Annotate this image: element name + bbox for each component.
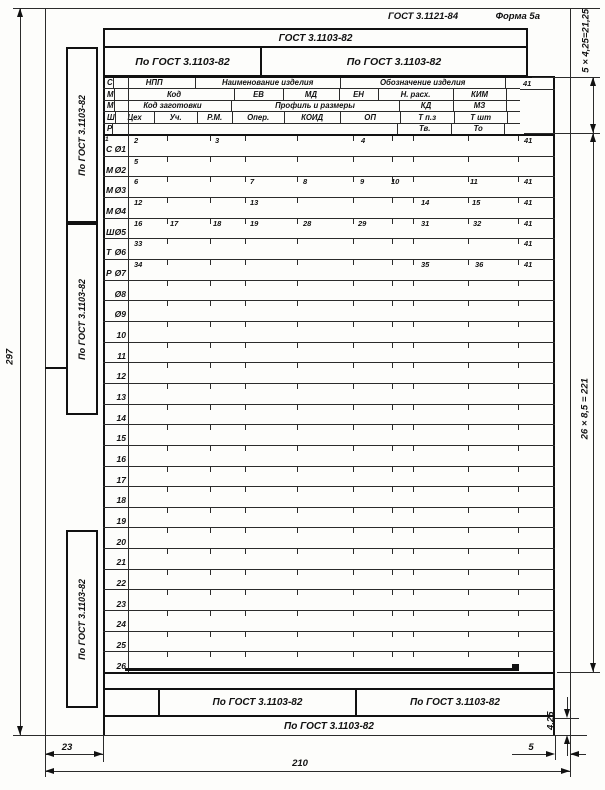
row-label: ТØ6 [103,248,129,257]
column-tick [245,384,246,389]
column-tick [518,322,519,327]
column-tick [392,157,393,162]
column-tick [468,446,469,451]
column-tick [413,363,414,368]
row-label: МØ2 [103,166,129,175]
field-number: 41 [524,240,532,248]
header-corner-41: 41 [520,78,555,90]
ext-line-header-bottom [524,133,600,134]
field-number: 28 [303,220,311,228]
column-tick [468,198,469,203]
sheet-border-right [570,8,571,735]
column-tick [392,260,393,265]
row-label: 14 [103,414,129,423]
side-block-3: По ГОСТ 3.1103-82 [66,530,98,708]
header-letter: Ш [103,112,116,122]
field-number: 12 [134,199,142,207]
table-bottom-line [103,672,555,674]
column-tick [353,363,354,368]
dim-footer-tail-bottom [567,744,568,756]
row-label: МØ4 [103,207,129,216]
table-row: МØ41213141541 [103,197,555,218]
column-tick [413,508,414,513]
column-tick [297,467,298,472]
column-tick [210,405,211,410]
column-tick [392,322,393,327]
column-tick [297,177,298,182]
column-tick [518,301,519,306]
field-number: 36 [475,261,483,269]
table-row: 10 [103,321,555,342]
table-row: 11 [103,342,555,363]
row-label-number: 22 [117,579,126,588]
row-label-prefix: Ш [106,228,114,237]
row-label-number: 24 [117,620,126,629]
column-tick [353,198,354,203]
column-tick [167,260,168,265]
column-tick [468,239,469,244]
row-label: 22 [103,579,129,588]
field-number: 34 [134,261,142,269]
column-tick [297,652,298,657]
column-tick [210,528,211,533]
column-tick [353,260,354,265]
column-tick [353,446,354,451]
header-cell: Обозначение изделия [341,78,506,88]
row-label-prefix: М [106,166,113,175]
row-label-number: 18 [117,496,126,505]
column-tick [468,219,469,224]
header-cell: ЕН [340,89,379,99]
row-label-number: Ø7 [115,269,126,278]
table-row: 16 [103,445,555,466]
column-tick [167,322,168,327]
table-row: 15 [103,424,555,445]
column-tick [518,528,519,533]
ext-line-table-right [555,735,556,760]
header-letter: С [103,78,114,88]
field-number: 29 [358,220,366,228]
row-label: 10 [103,331,129,340]
dim-297-arrow-top [17,8,23,17]
row-label-prefix: Т [106,248,111,257]
field-number: 41 [524,220,532,228]
page-title: ГОСТ 3.1121-84 Форма 5а [388,11,540,22]
table-row: 13 [103,383,555,404]
column-tick [297,301,298,306]
column-tick [518,281,519,286]
column-tick [167,343,168,348]
column-tick [210,260,211,265]
column-tick [210,652,211,657]
row-label-number: 15 [117,434,126,443]
column-tick [245,219,246,224]
header-cell: Р.М. [198,112,233,122]
column-tick [297,632,298,637]
column-tick [518,632,519,637]
side-block-1: По ГОСТ 3.1103-82 [66,47,98,223]
table-row: ШØ5161718192829313241 [103,218,555,239]
row-label-number: Ø4 [115,207,126,216]
column-tick [392,611,393,616]
row-label: 23 [103,600,129,609]
column-tick [518,405,519,410]
column-tick [210,136,211,141]
column-tick [210,198,211,203]
ext-line-footer-top [555,718,579,719]
end-of-table-square [512,664,519,671]
row-label: 11 [103,352,129,361]
table-row: 24 [103,610,555,631]
column-tick [297,405,298,410]
column-tick [392,219,393,224]
column-tick [353,301,354,306]
row-label: СØ1 [103,145,129,154]
field-number: 41 [524,137,532,145]
column-tick [468,467,469,472]
dim-right-line [593,77,594,672]
table-row: 12 [103,362,555,383]
column-tick [413,260,414,265]
column-tick [518,570,519,575]
column-tick [245,343,246,348]
row-label-number: 13 [117,393,126,402]
column-tick [210,467,211,472]
column-tick [297,384,298,389]
column-tick [353,487,354,492]
column-tick [245,239,246,244]
column-tick [245,611,246,616]
top-block: ГОСТ 3.1103-82 По ГОСТ 3.1103-82 По ГОСТ… [103,28,528,77]
header-row-m2: М Код заготовки Профиль и размеры КД МЗ [103,101,520,112]
dim-footer-label: 4,25 [546,705,556,737]
column-tick [413,198,414,203]
dim-5-arrow-left [546,751,555,757]
column-tick [413,549,414,554]
column-tick [392,652,393,657]
column-tick [518,219,519,224]
footer-right-cell: По ГОСТ 3.1103-82 [357,690,553,715]
row-label-number: Ø1 [115,145,126,154]
column-tick [468,549,469,554]
header-letter: Р [103,124,113,134]
dim-210-arrow-left [45,768,54,774]
column-tick [518,508,519,513]
column-tick [392,239,393,244]
column-tick [353,528,354,533]
column-tick [353,652,354,657]
dim-210-arrow-right [561,768,570,774]
column-tick [468,260,469,265]
spec-header: С НПП Наименование изделия Обозначение и… [103,78,520,134]
row-label-number: 17 [117,476,126,485]
column-tick [297,219,298,224]
header-cell: Цех [116,112,155,122]
row-label-number: 10 [117,331,126,340]
column-tick [413,322,414,327]
row-label-number: Ø8 [115,290,126,299]
column-tick [167,219,168,224]
column-tick [518,549,519,554]
column-tick [245,487,246,492]
column-tick [413,425,414,430]
field-number: 33 [134,240,142,248]
column-tick [245,446,246,451]
sheet-border-left [45,8,46,735]
sheet-border-bottom [13,735,587,736]
column-tick [518,239,519,244]
column-tick [392,570,393,575]
field-number: 9 [360,178,364,186]
column-tick [245,177,246,182]
dim-footer-arrow-bottom [564,735,570,744]
dim-210-line [45,771,570,772]
column-tick [468,157,469,162]
column-tick [413,177,414,182]
column-tick [353,590,354,595]
column-tick [468,343,469,348]
column-tick [167,177,168,182]
column-tick [413,405,414,410]
side-block-connector [45,367,66,369]
dim-297-arrow-bottom [17,726,23,735]
label-column-divider [128,77,129,672]
row-label: 18 [103,496,129,505]
table-row: 19 [103,507,555,528]
column-tick [297,508,298,513]
field-number: 4 [361,137,365,145]
column-tick [167,405,168,410]
header-row-sh: Ш Цех Уч. Р.М. Опер. КОИД ОП Т п.з Т шт [103,112,520,123]
column-tick [392,136,393,141]
column-tick [245,281,246,286]
row-label: 15 [103,434,129,443]
column-tick [468,363,469,368]
field-number: 19 [250,220,258,228]
dim-header-arrow-bottom [590,124,596,133]
row-label: Ø9 [103,310,129,319]
row-label-prefix: М [106,207,113,216]
field-number: 2 [134,137,138,145]
column-tick [297,528,298,533]
column-tick [392,528,393,533]
column-tick [210,425,211,430]
column-tick [245,198,246,203]
column-tick [210,219,211,224]
header-cell: Т шт [455,112,508,122]
header-letter: М [103,101,115,111]
column-tick [245,590,246,595]
field-number: 32 [473,220,481,228]
column-tick [413,343,414,348]
column-tick [245,260,246,265]
dim-rows-arrow-top [590,133,596,142]
column-tick [518,467,519,472]
header-cell: МЗ [454,101,507,111]
column-tick [392,343,393,348]
table-row: 25 [103,631,555,652]
header-cell: Код заготовки [115,101,232,111]
column-tick [392,590,393,595]
column-tick [353,405,354,410]
column-tick [297,425,298,430]
column-tick [297,611,298,616]
column-tick [210,446,211,451]
column-tick [468,136,469,141]
dim-297-line [20,8,21,735]
field-number: 16 [134,220,142,228]
column-tick [353,549,354,554]
row-label: 25 [103,641,129,650]
dim-23-label: 23 [52,743,82,753]
column-tick [297,260,298,265]
column-tick [413,446,414,451]
column-tick [392,405,393,410]
header-cell [113,124,398,134]
table-row: 14 [103,404,555,425]
column-tick [245,157,246,162]
column-tick [392,632,393,637]
column-tick [518,590,519,595]
form-number: Форма 5а [496,11,540,22]
table-row: РØ734353641 [103,259,555,280]
row-label-number: 14 [117,414,126,423]
grid-rows: 1СØ123441МØ25МØ36789101141МØ41213141541Ш… [103,136,555,672]
field-number: 41 [524,178,532,186]
column-tick [468,508,469,513]
column-tick [167,528,168,533]
header-cell: Т п.з [401,112,455,122]
header-cell: ОП [341,112,401,122]
column-tick [167,301,168,306]
column-tick [392,467,393,472]
column-tick [353,343,354,348]
side-block-2: По ГОСТ 3.1103-82 [66,223,98,415]
column-tick [518,652,519,657]
row-superscript: 1 [105,137,109,144]
row-label: 16 [103,455,129,464]
column-tick [167,384,168,389]
field-number: 7 [250,178,254,186]
row-label-number: 25 [117,641,126,650]
column-tick [468,177,469,182]
row-label: 20 [103,538,129,547]
row-label: 17 [103,476,129,485]
row-label-number: Ø6 [115,248,126,257]
dim-5-line-left [512,754,546,755]
header-cell: Тв. [398,124,452,134]
column-tick [518,177,519,182]
column-tick [353,508,354,513]
header-cell: КИМ [454,89,507,99]
column-tick [353,157,354,162]
column-tick [245,528,246,533]
field-number: 15 [472,199,480,207]
header-cell: Наименование изделия [196,78,341,88]
table-row: 1СØ123441 [103,136,555,156]
column-tick [210,177,211,182]
row-label-prefix: Р [106,269,112,278]
column-tick [468,487,469,492]
column-tick [413,157,414,162]
header-cell: То [452,124,505,134]
column-tick [210,570,211,575]
field-number: 41 [524,261,532,269]
column-tick [167,363,168,368]
top-block-right-cell: По ГОСТ 3.1103-82 [262,48,526,75]
top-block-row1: ГОСТ 3.1103-82 [105,30,526,48]
column-tick [210,301,211,306]
column-tick [210,487,211,492]
column-tick [210,157,211,162]
top-block-left-cell: По ГОСТ 3.1103-82 [105,48,262,75]
header-cell: Профиль и размеры [232,101,400,111]
table-row: МØ36789101141 [103,176,555,197]
column-tick [297,281,298,286]
column-tick [468,301,469,306]
column-tick [353,177,354,182]
dim-footer-tail-top [567,697,568,709]
column-tick [245,322,246,327]
header-cell: ЕВ [235,89,284,99]
column-tick [468,652,469,657]
field-number: 18 [213,220,221,228]
field-number: 13 [250,199,258,207]
column-tick [413,467,414,472]
column-tick [245,549,246,554]
column-tick [297,239,298,244]
column-tick [353,570,354,575]
column-tick [297,343,298,348]
column-tick [392,384,393,389]
field-number: 10 [391,178,399,186]
header-cell: Уч. [155,112,198,122]
header-row-c: С НПП Наименование изделия Обозначение и… [103,78,520,89]
column-tick [518,343,519,348]
column-tick [210,632,211,637]
column-tick [297,157,298,162]
ext-line-table-left [103,735,104,762]
column-tick [167,508,168,513]
row-label-number: Ø3 [115,186,126,195]
ext-line-rows-bottom [557,672,600,673]
column-tick [518,198,519,203]
table-row: ТØ63341 [103,238,555,259]
field-number: 35 [421,261,429,269]
form-sheet-drawing: ГОСТ 3.1121-84 Форма 5а 297 По ГОСТ 3.11… [0,0,605,790]
column-tick [167,136,168,141]
row-label-number: 23 [117,600,126,609]
column-tick [245,632,246,637]
dim-23-arrow-right [94,751,103,757]
field-number: 17 [170,220,178,228]
column-tick [392,508,393,513]
column-tick [167,239,168,244]
column-tick [245,405,246,410]
column-tick [167,652,168,657]
column-tick [413,528,414,533]
column-tick [392,198,393,203]
column-tick [167,425,168,430]
column-tick [392,363,393,368]
column-tick [468,425,469,430]
column-tick [518,136,519,141]
column-tick [413,384,414,389]
footer-block: По ГОСТ 3.1103-82 По ГОСТ 3.1103-82 [103,688,555,717]
column-tick [413,281,414,286]
row-label-number: Ø2 [115,166,126,175]
dim-297-label: 297 [5,340,15,374]
